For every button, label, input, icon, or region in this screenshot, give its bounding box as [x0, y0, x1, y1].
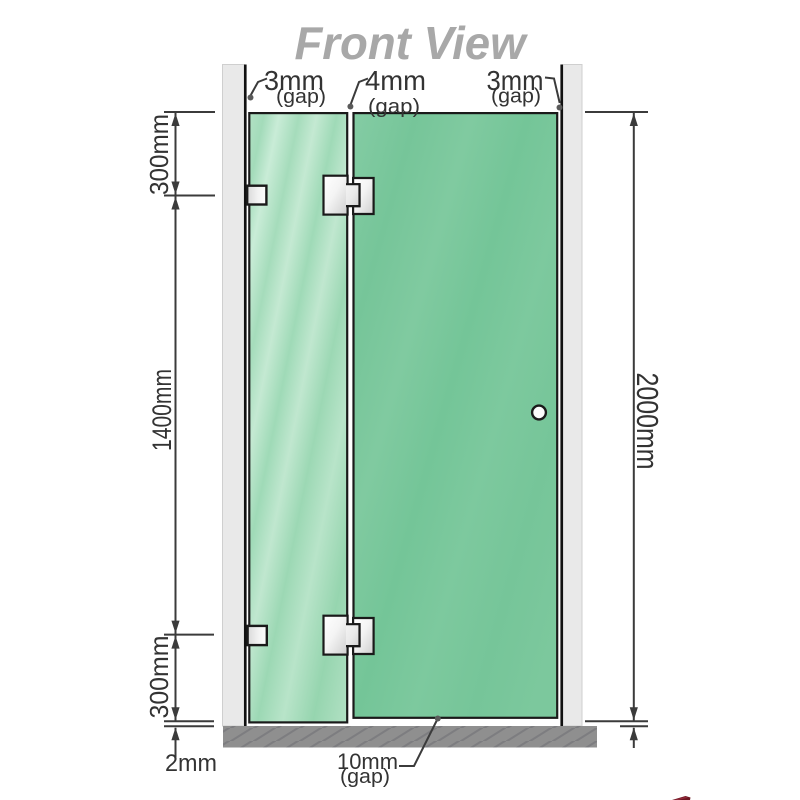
- svg-text:(gap): (gap): [276, 86, 326, 108]
- svg-text:2000mm: 2000mm: [630, 373, 665, 470]
- svg-text:300mm: 300mm: [144, 114, 174, 195]
- svg-text:(gap): (gap): [491, 86, 541, 108]
- svg-text:Front View: Front View: [295, 17, 529, 69]
- svg-text:(gap): (gap): [340, 766, 390, 788]
- svg-text:(gap): (gap): [368, 96, 420, 118]
- svg-text:2mm: 2mm: [165, 750, 217, 777]
- svg-text:4mm: 4mm: [365, 65, 426, 96]
- svg-text:1400mm: 1400mm: [147, 369, 177, 451]
- svg-text:300mm: 300mm: [144, 636, 174, 719]
